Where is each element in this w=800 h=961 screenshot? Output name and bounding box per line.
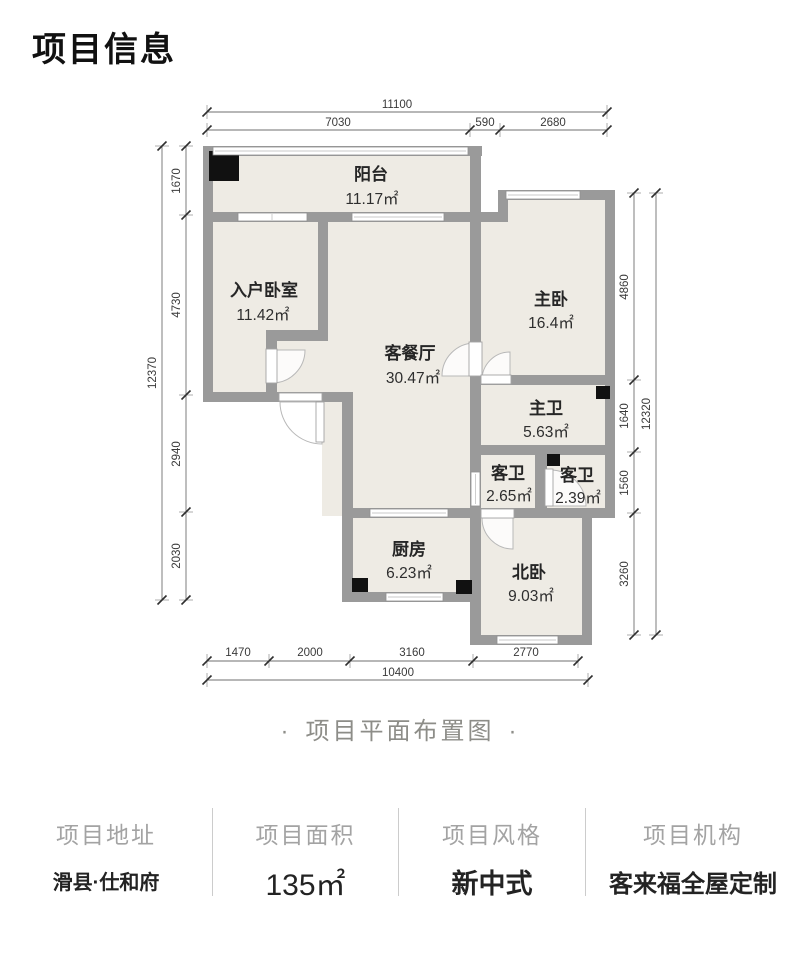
dim-right-seg4: 3260 xyxy=(619,561,631,587)
kitchen-window xyxy=(386,593,443,601)
dim-top-seg2: 590 xyxy=(475,117,494,129)
page: 项目信息 xyxy=(0,0,800,961)
bedroom1-window xyxy=(238,213,307,221)
dim-bottom: 1470 2000 3160 2770 10400 xyxy=(203,647,593,687)
info-label-agency: 项目机构 xyxy=(643,816,743,850)
plan-caption: ·项目平面布置图· xyxy=(0,711,800,746)
caption-right-dot: · xyxy=(495,718,534,745)
dim-bottom-seg1: 1470 xyxy=(225,647,251,659)
dim-left-seg2: 4730 xyxy=(171,292,183,318)
info-col-address: 项目地址 滑县·仕和府 xyxy=(0,808,212,896)
dim-bottom-seg2: 2000 xyxy=(297,647,323,659)
floor-plan: 阳台 11.17㎡ 入户卧室 11.42㎡ 客餐厅 30.47㎡ 主卧 16.4… xyxy=(0,0,800,700)
living-balcony-window xyxy=(352,213,444,221)
room-area-living-dining: 30.47㎡ xyxy=(386,369,441,387)
dim-left-overall: 12370 xyxy=(147,357,159,389)
north-bedroom-window xyxy=(497,636,558,644)
exterior-notch xyxy=(480,146,498,214)
room-name-master-bath: 主卫 xyxy=(529,398,563,418)
dim-left-seg4: 2030 xyxy=(171,543,183,569)
caption-left-dot: · xyxy=(267,718,306,745)
info-value-agency: 客来福全屋定制 xyxy=(609,864,777,899)
master-bedroom-window xyxy=(506,191,580,199)
guest-bath-sliding-door xyxy=(471,472,480,506)
column xyxy=(456,580,472,594)
room-area-kitchen: 6.23㎡ xyxy=(386,564,432,582)
room-name-master-bedroom: 主卧 xyxy=(534,289,568,309)
info-col-agency: 项目机构 客来福全屋定制 xyxy=(585,808,800,896)
dim-right-seg1: 4860 xyxy=(619,274,631,300)
dim-left-seg3: 2940 xyxy=(171,441,183,467)
room-name-balcony: 阳台 xyxy=(354,164,388,184)
column xyxy=(209,151,239,181)
room-name-entry-bedroom: 入户卧室 xyxy=(230,280,298,300)
dim-top: 11100 7030 590 2680 xyxy=(203,99,612,137)
dim-top-seg1: 7030 xyxy=(325,117,351,129)
caption-text: 项目平面布置图 xyxy=(306,718,495,745)
entry-door xyxy=(279,393,324,444)
dim-right: 4860 1640 1560 3260 12320 xyxy=(619,189,663,640)
info-label-address: 项目地址 xyxy=(56,816,156,850)
column xyxy=(352,578,368,592)
balcony-window xyxy=(213,147,468,155)
room-area-north-bedroom: 9.03㎡ xyxy=(508,587,554,605)
info-value-address: 滑县·仕和府 xyxy=(53,866,160,895)
dim-right-seg2: 1640 xyxy=(619,403,631,429)
dim-top-seg3: 2680 xyxy=(540,117,566,129)
room-area-entry-bedroom: 11.42㎡ xyxy=(236,306,290,324)
dim-left: 12370 1670 4730 2940 2030 xyxy=(147,142,193,605)
room-name-kitchen: 厨房 xyxy=(392,539,426,559)
info-value-area: 135㎡ xyxy=(265,860,345,904)
room-area-guest-bath1: 2.65㎡ xyxy=(486,487,532,505)
info-label-style: 项目风格 xyxy=(442,816,542,850)
room-area-balcony: 11.17㎡ xyxy=(345,190,399,208)
column xyxy=(596,386,610,399)
dim-bottom-seg4: 2770 xyxy=(513,647,539,659)
info-col-style: 项目风格 新中式 xyxy=(398,808,585,896)
dim-left-seg1: 1670 xyxy=(171,168,183,194)
room-name-guest-bath1: 客卫 xyxy=(490,463,525,483)
room-name-north-bedroom: 北卧 xyxy=(512,563,546,582)
room-area-guest-bath2: 2.39㎡ xyxy=(555,489,601,507)
dim-bottom-overall: 10400 xyxy=(382,667,414,679)
dim-right-seg3: 1560 xyxy=(619,470,631,496)
room-area-master-bath: 5.63㎡ xyxy=(523,423,569,441)
dim-right-overall: 12320 xyxy=(641,398,653,430)
dim-bottom-seg3: 3160 xyxy=(399,647,425,659)
project-info-bar: 项目地址 滑县·仕和府 项目面积 135㎡ 项目风格 新中式 项目机构 客来福全… xyxy=(0,808,800,896)
column xyxy=(547,454,560,466)
info-value-style: 新中式 xyxy=(452,862,533,901)
kitchen-sliding-door xyxy=(370,509,448,517)
room-name-living-dining: 客餐厅 xyxy=(384,343,436,363)
info-col-area: 项目面积 135㎡ xyxy=(212,808,398,896)
info-label-area: 项目面积 xyxy=(256,816,356,850)
dim-top-overall: 11100 xyxy=(382,99,412,111)
room-area-master-bedroom: 16.4㎡ xyxy=(528,314,574,332)
room-name-guest-bath2: 客卫 xyxy=(559,465,594,485)
